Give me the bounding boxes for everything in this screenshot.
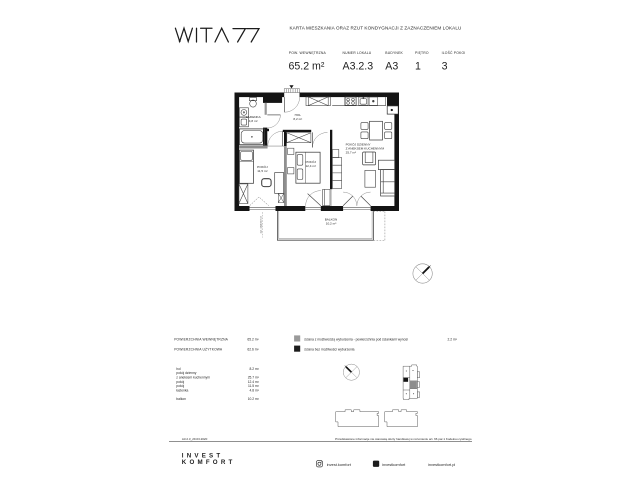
svg-text:POW. WEWNĘTRZNA: POW. WEWNĘTRZNA: [289, 51, 327, 55]
svg-text:3: 3: [442, 61, 448, 73]
svg-text:12,4 m²: 12,4 m²: [305, 164, 316, 168]
svg-text:NUMER LOKALU: NUMER LOKALU: [343, 51, 372, 55]
svg-text:Przedstawione informacje nie s: Przedstawione informacje nie stanowią of…: [335, 437, 472, 441]
svg-text:KARTA MIESZKANIA ORAZ RZUT KON: KARTA MIESZKANIA ORAZ RZUT KONDYGNACJI Z…: [290, 25, 462, 30]
svg-text:A3.2.3_29.03.2020: A3.2.3_29.03.2020: [182, 437, 208, 441]
svg-text:wys. attyki 110 cm: wys. attyki 110 cm: [259, 216, 262, 234]
svg-text:8.2 m²: 8.2 m²: [250, 367, 260, 371]
svg-text:BUDYNEK: BUDYNEK: [385, 51, 403, 55]
svg-text:ściana bez możliwości wyburzen: ściana bez możliwości wyburzenia: [304, 348, 354, 352]
svg-text:POWIERZCHNIA UŻYTKOWA: POWIERZCHNIA UŻYTKOWA: [174, 347, 223, 352]
svg-text:10,2 m²: 10,2 m²: [326, 222, 337, 226]
svg-text:ILOŚĆ POKOI: ILOŚĆ POKOI: [442, 50, 466, 55]
svg-text:KOMFORT: KOMFORT: [182, 459, 236, 466]
svg-text:4.8 m²: 4.8 m²: [250, 388, 260, 392]
svg-text:65.2 m²: 65.2 m²: [247, 337, 259, 341]
svg-text:invest.komfort: invest.komfort: [327, 462, 352, 467]
svg-text:2.2 m²: 2.2 m²: [448, 337, 458, 341]
svg-text:A3.2.3: A3.2.3: [343, 61, 374, 73]
svg-text:62.6 m²: 62.6 m²: [247, 348, 259, 352]
svg-text:4,8 m²: 4,8 m²: [249, 119, 258, 123]
svg-text:8,2 m²: 8,2 m²: [293, 117, 302, 121]
svg-text:f: f: [375, 462, 377, 468]
svg-text:ściana z możliwością wyburzeni: ściana z możliwością wyburzenia - powier…: [304, 337, 408, 341]
svg-text:PIĘTRO: PIĘTRO: [415, 51, 429, 55]
svg-text:łazienka: łazienka: [176, 388, 188, 392]
svg-text:investkomfort: investkomfort: [382, 462, 406, 467]
svg-text:25,7 m²: 25,7 m²: [346, 150, 357, 154]
svg-text:balkon: balkon: [176, 397, 186, 401]
svg-text:A3: A3: [385, 61, 398, 73]
svg-text:investkomfort.pl: investkomfort.pl: [428, 462, 455, 467]
svg-text:65.2 m²: 65.2 m²: [289, 61, 325, 73]
svg-text:POWIERZCHNIA WEWNĘTRZNA: POWIERZCHNIA WEWNĘTRZNA: [174, 337, 228, 341]
svg-text:11,5 m²: 11,5 m²: [257, 169, 267, 173]
svg-text:10.2 m²: 10.2 m²: [248, 397, 260, 401]
svg-text:1: 1: [415, 61, 421, 73]
